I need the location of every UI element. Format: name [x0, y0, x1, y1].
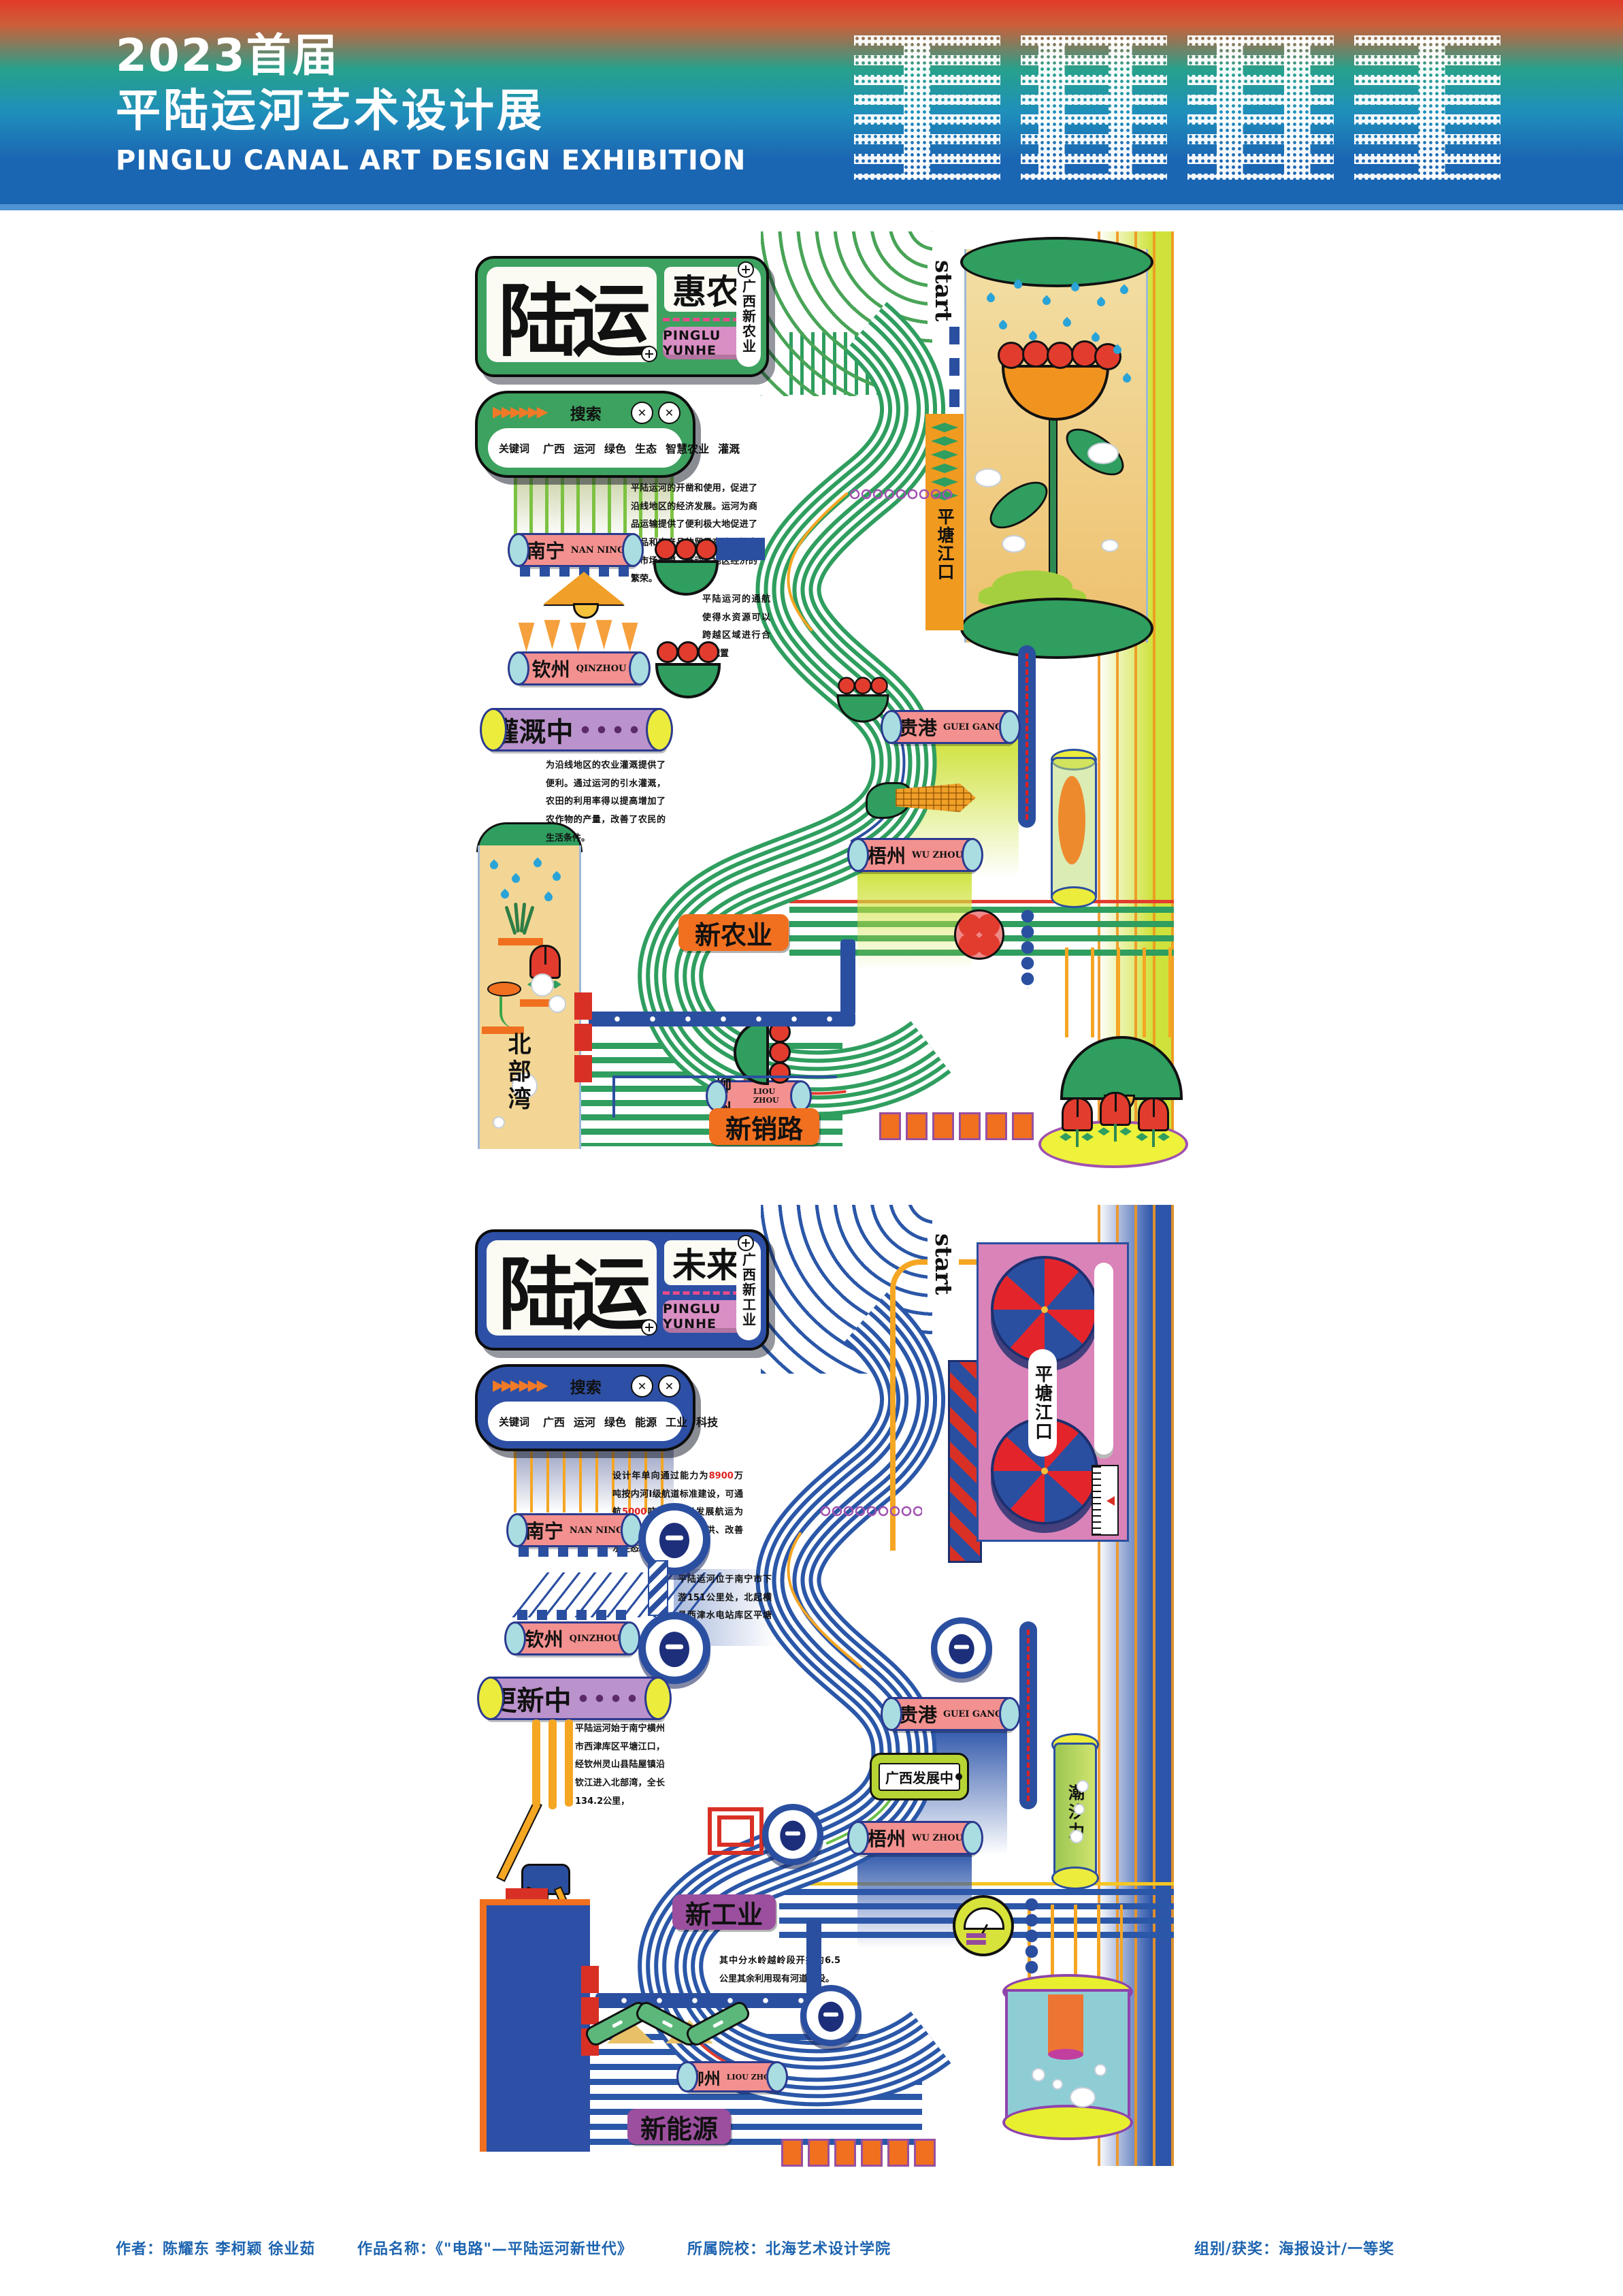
carrot-icon: [569, 621, 587, 652]
gauge-bars: [966, 1933, 999, 1945]
tag-new-agriculture: 新农业: [678, 914, 789, 951]
keyword: 广西: [543, 1413, 565, 1429]
flower-head: [487, 982, 521, 997]
berry-icon: [675, 538, 697, 560]
keyword: 运河: [574, 440, 595, 456]
pipe-joint: [574, 1024, 592, 1051]
exhibition-sheet: 2023首届 平陆运河艺术设计展 PINGLU CANAL ART DESIGN…: [0, 0, 1623, 2296]
berry-icon: [1022, 340, 1049, 368]
berry-icon: [1047, 342, 1074, 369]
bead-chain-decoration: [1025, 1898, 1038, 1977]
tulip-icon: [1100, 1092, 1131, 1126]
bubble: [493, 1116, 505, 1129]
wire: [612, 1076, 837, 1078]
cylinder-cap: [847, 1821, 869, 1855]
keyword: 绿色: [604, 440, 626, 456]
city-name-en: WU ZHOU: [912, 850, 963, 860]
logotype-glyph: [1021, 35, 1167, 180]
cylinder-cap: [999, 1697, 1021, 1731]
bubble: [1070, 1830, 1083, 1843]
keyword: 广西: [543, 440, 565, 456]
page-title-year: 2023首届: [116, 29, 746, 83]
leaf-icon: [931, 450, 958, 459]
berry-icon: [769, 1041, 791, 1063]
plus-icon: [738, 261, 754, 278]
logotype-glyph: [1187, 35, 1334, 180]
berry-icon: [677, 641, 699, 663]
city-name-en: GUEI GANG: [943, 722, 1002, 732]
brand-title: 陆运: [487, 267, 657, 362]
leaf-icon: [931, 423, 958, 432]
berry-icon: [698, 641, 719, 663]
tank-bottom: [960, 598, 1153, 659]
bubble: [548, 995, 566, 1013]
city-name-en: GUEI GANG: [943, 1709, 1002, 1719]
start-label: start: [928, 256, 959, 325]
red-frame-decoration: [717, 1815, 754, 1847]
gate-bar: 平塘江口: [925, 414, 964, 630]
cylinder-cap: [508, 651, 529, 685]
brand-tagline-vertical: 广西新农业: [736, 266, 761, 367]
bubble: [1070, 2087, 1096, 2107]
gate-label: 平塘江口: [1028, 1349, 1057, 1457]
cylinder-cap: [962, 1821, 983, 1855]
pipe-segment: [589, 1012, 855, 1026]
plus-icon: [641, 1319, 657, 1336]
minus-node-icon: [762, 1804, 823, 1865]
pipe-joint: [574, 1055, 592, 1082]
berry-icon: [657, 641, 678, 663]
connector-dashes: [949, 327, 960, 408]
highlight-number: 8900: [709, 1471, 734, 1481]
info-paragraph: 为沿线地区的农业灌溉提供了便利。通过运河的引水灌溉，农田的利用率得以提高增加了农…: [546, 757, 666, 847]
bubble: [1101, 539, 1119, 552]
cylinder-cap: [629, 651, 651, 685]
poster-brand-box: 陆运 未来 PINGLU YUNHE 广西新工业: [475, 1229, 769, 1351]
canal-gate-bar: [1019, 1621, 1037, 1809]
bead-chain-decoration: [1021, 909, 1034, 988]
minus-node-icon: [638, 1612, 710, 1684]
tulip-stem: [1114, 1124, 1117, 1142]
gauge-icon: [953, 1895, 1014, 1956]
page-header: 2023首届 平陆运河艺术设计展 PINGLU CANAL ART DESIGN…: [0, 0, 1623, 204]
arrows-icon: ▶▶▶▶▶▶: [493, 405, 546, 420]
info-paragraph: 其中分水岭越岭段开挖约6.5公里其余利用现有河道建设。: [719, 1952, 840, 1988]
city-name-zh: 钦州: [525, 1625, 563, 1652]
bubble: [1094, 2064, 1106, 2076]
minus-node-icon: [800, 1985, 862, 2046]
bubble: [1032, 2068, 1045, 2082]
bubble: [1052, 2079, 1063, 2090]
logotype-glyph: [1354, 35, 1501, 180]
cylinder-cap: [622, 533, 644, 567]
tulip-stem: [1076, 1129, 1079, 1147]
berry-icon: [655, 538, 676, 560]
pipe-joint: [581, 1997, 599, 2024]
jar-cap: [1051, 886, 1097, 908]
corn-icon: [866, 778, 978, 818]
city-name-en: NAN NING: [570, 1525, 623, 1536]
keyword: 能源: [635, 1413, 657, 1429]
bead-chain-decoration: [849, 489, 953, 500]
keyword: 绿色: [604, 1413, 626, 1429]
berry-icon: [769, 1062, 791, 1084]
bubble: [1077, 1780, 1089, 1792]
city-name-zh: 南宁: [527, 536, 565, 564]
flower-icon: [487, 982, 521, 1028]
jar-fruit: [1058, 776, 1085, 864]
cylinder-cap: [508, 533, 529, 567]
credit-work-title: 作品名称：《"电路"—平陆运河新世代》: [357, 2237, 633, 2259]
halftone-logotype: [854, 35, 1501, 180]
poster-industry: 陆运 未来 PINGLU YUNHE 广西新工业 ▶▶▶▶▶▶ 搜索 ✕ ✕ 关…: [449, 1205, 1174, 2166]
fruit-bowl-icon: [653, 536, 719, 598]
cylinder-cap: [962, 838, 983, 872]
search-bar: ▶▶▶▶▶▶ 搜索 ✕ ✕ 关键词 广西 运河 绿色 生态 智慧农业 灌溉: [475, 391, 695, 478]
keyword: 灌溉: [718, 440, 740, 456]
tag-text: 新农业: [695, 914, 772, 952]
ring-decoration: [761, 231, 932, 396]
bubble: [974, 468, 1002, 487]
carrot-icon: [595, 618, 613, 649]
tank-pipe: [1048, 1994, 1083, 2054]
square-row-decoration: [781, 2139, 936, 2167]
city-name-zh: 梧州: [868, 841, 906, 869]
bubble: [1074, 1804, 1085, 1815]
city-label-nanning: 南宁 NAN NING: [515, 533, 636, 567]
city-label-qinzhou: 钦州 QINZHOU: [515, 651, 643, 685]
poster-agriculture: 陆运 惠农 PINGLU YUNHE 广西新农业 ▶▶▶▶▶▶ 搜索 ✕ ✕ 关…: [449, 231, 1174, 1152]
city-label-qinzhou: 钦州 QINZHOU: [512, 1621, 633, 1655]
credit-author: 作者：陈耀东 李柯颖 徐业茹: [116, 2237, 315, 2259]
orange-pipe: [532, 1719, 540, 1807]
close-icon: ✕: [631, 1375, 653, 1397]
cylinder-cap: [999, 710, 1021, 744]
tulip-stem: [1152, 1129, 1155, 1147]
city-name-zh: 梧州: [868, 1824, 906, 1852]
keyword: 科技: [696, 1413, 718, 1429]
city-name-en: NAN NING: [571, 545, 625, 555]
square-row-decoration: [879, 1112, 1034, 1140]
camera-dot: [955, 1773, 962, 1780]
striped-connector: [648, 1560, 668, 1616]
carrot-icon: [543, 618, 561, 649]
lamp-icon: [543, 572, 625, 604]
city-label-nanning: 南宁 NAN NING: [514, 1513, 635, 1547]
wire-fan-decoration: [1065, 948, 1175, 1037]
pipe-segment: [806, 1920, 821, 1996]
tag-text: 新工业: [685, 1894, 763, 1931]
berry-icon: [870, 677, 888, 694]
bowl-cup: [655, 663, 721, 698]
orange-pipe: [548, 1719, 557, 1809]
status-label-updating: 更新中: [485, 1677, 664, 1720]
keyword: 智慧农业: [666, 440, 709, 456]
city-name-zh: 钦州: [532, 655, 570, 682]
city-name-zh: 贵港: [899, 1700, 937, 1728]
bowl-cup: [837, 694, 889, 723]
keyword-label: 关键词: [499, 1414, 529, 1429]
tag-new-sales: 新销路: [709, 1108, 819, 1145]
cylinder-cap: [504, 1621, 526, 1655]
cylinder-cap: [847, 838, 869, 872]
gradient-trail: [857, 868, 972, 970]
city-label-wuzhou: 梧州 WU ZHOU: [855, 838, 976, 872]
berry-icon: [854, 677, 872, 694]
arrows-icon: ▶▶▶▶▶▶: [493, 1378, 546, 1393]
cylinder-cap: [881, 1697, 902, 1731]
keyword: 生态: [635, 440, 657, 456]
dev-device: 广西发展中: [870, 1753, 969, 1800]
close-icon: ✕: [658, 1375, 681, 1397]
page-title-zh: 平陆运河艺术设计展: [116, 83, 746, 139]
leaf-icon: [931, 436, 958, 446]
cylinder-cap: [477, 1677, 504, 1720]
berry-icon: [838, 677, 855, 694]
status-label-irrigating: 灌溉中: [487, 708, 666, 751]
connector-teeth: [519, 1547, 633, 1557]
city-name-en: QINZHOU: [570, 1634, 620, 1644]
lamp-bulb-icon: [573, 603, 599, 619]
dev-text: 广西发展中: [879, 1763, 960, 1791]
keyword: 工业: [666, 1413, 687, 1429]
header-divider: [0, 204, 1623, 210]
machine-cap: [506, 1888, 548, 1899]
connector-teeth: [517, 1610, 632, 1620]
keyword-label: 关键词: [499, 441, 529, 455]
cylinder-cap: [646, 708, 673, 751]
search-title: 搜索: [546, 1374, 626, 1397]
tag-text: 新能源: [640, 2108, 718, 2146]
cylinder-cap: [619, 1621, 640, 1655]
canal-gate-bar: [1018, 645, 1036, 828]
cylinder-cap: [506, 1513, 528, 1547]
pipe-segment: [716, 538, 765, 560]
bead-chain-decoration: [820, 1506, 922, 1517]
credit-school: 所属院校：北海艺术设计学院: [687, 2237, 891, 2259]
machine-illustration: [480, 1899, 590, 2152]
paragraph-text: 设计年单向通过能力为: [612, 1471, 709, 1481]
page-title-en: PINGLU CANAL ART DESIGN EXHIBITION: [116, 139, 746, 182]
ruler-icon: [1092, 1465, 1119, 1536]
plus-icon: [738, 1235, 754, 1251]
city-name-zh: 贵港: [899, 713, 937, 741]
search-input: 关键词 广西 运河 绿色 能源 工业 科技: [488, 1402, 683, 1441]
cylinder-cap: [766, 2061, 788, 2092]
tag-new-energy: 新能源: [627, 2109, 731, 2144]
cylinder-cap: [644, 1677, 672, 1720]
tank-cap: [1002, 2105, 1133, 2140]
brand-tagline-vertical: 广西新工业: [736, 1240, 761, 1340]
fruit-bowl-icon: [837, 675, 889, 725]
close-icon: ✕: [631, 402, 653, 424]
berry-icon: [998, 342, 1025, 369]
pipe-segment: [840, 939, 855, 1016]
bay-label: 北部湾: [501, 1032, 534, 1114]
berry-icon: [695, 538, 717, 560]
search-bar: ▶▶▶▶▶▶ 搜索 ✕ ✕ 关键词 广西 运河 绿色 能源 工业 科技: [475, 1364, 695, 1451]
city-label-liuzhou: 柳州 LIOU ZHOU: [684, 2061, 781, 2092]
orange-pipe: [565, 1719, 573, 1807]
gate-label: 平塘江口: [932, 508, 957, 581]
close-icon: ✕: [658, 402, 681, 424]
info-paragraph: 平陆运河始于南宁横州市西津库区平塘江口，经钦州灵山县陆屋镇沿钦江进入北部湾，全长…: [575, 1720, 665, 1811]
keyword: 运河: [574, 1413, 595, 1429]
bubble: [1087, 442, 1119, 464]
start-label: start: [928, 1229, 959, 1299]
pipe-joint: [574, 992, 592, 1020]
search-title: 搜索: [546, 401, 626, 424]
city-label-wuzhou: 梧州 WU ZHOU: [855, 1821, 976, 1855]
tank-top: [960, 237, 1153, 287]
wire: [612, 1076, 615, 1118]
cylinder-cap: [676, 2061, 698, 2092]
bowl-cup: [653, 560, 719, 596]
tag-text: 新销路: [725, 1108, 803, 1146]
minus-node-icon: [931, 1617, 992, 1679]
flower-stem: [499, 997, 514, 1028]
tulip-icon: [1062, 1097, 1093, 1131]
tulip-icon: [1138, 1097, 1169, 1131]
city-name-en: WU ZHOU: [912, 1833, 963, 1843]
bubble: [1002, 535, 1026, 553]
brand-title: 陆运: [487, 1240, 657, 1336]
leaf-icon: [931, 464, 958, 473]
tomato-icon: [954, 909, 1004, 960]
carrot-icon: [621, 621, 639, 652]
city-name-zh: 南宁: [525, 1517, 563, 1544]
fruit-bowl-icon: [655, 638, 721, 701]
bubble: [531, 973, 554, 997]
credit-award: 组别/获奖：海报设计/一等奖: [1194, 2237, 1394, 2259]
city-name-en: QINZHOU: [576, 664, 627, 674]
cylinder-cap: [480, 708, 507, 751]
city-label-guigang: 贵港 GUEI GANG: [888, 1697, 1013, 1731]
plus-icon: [641, 346, 657, 362]
poster-brand-box: 陆运 惠农 PINGLU YUNHE 广西新农业: [475, 256, 769, 377]
soil-bar: [498, 938, 543, 945]
city-label-guigang: 贵港 GUEI GANG: [888, 710, 1013, 744]
cylinder-cap: [1051, 1866, 1099, 1890]
logotype-glyph: [854, 35, 1000, 180]
credits-footer: 作者：陈耀东 李柯颖 徐业茹 作品名称：《"电路"—平陆运河新世代》 所属院校：…: [116, 2237, 1507, 2264]
pipe-joint: [581, 1966, 599, 1993]
slider-decoration: [1094, 1263, 1113, 1455]
cylinder-cap: [706, 1080, 727, 1112]
carrot-icon: [517, 621, 536, 652]
tag-new-industry: 新工业: [672, 1894, 776, 1930]
leaf-icon: [931, 477, 958, 487]
reel-icon: [991, 1256, 1098, 1363]
search-input: 关键词 广西 运河 绿色 生态 智慧农业 灌溉: [488, 428, 683, 468]
page-title: 2023首届 平陆运河艺术设计展 PINGLU CANAL ART DESIGN…: [116, 29, 746, 182]
